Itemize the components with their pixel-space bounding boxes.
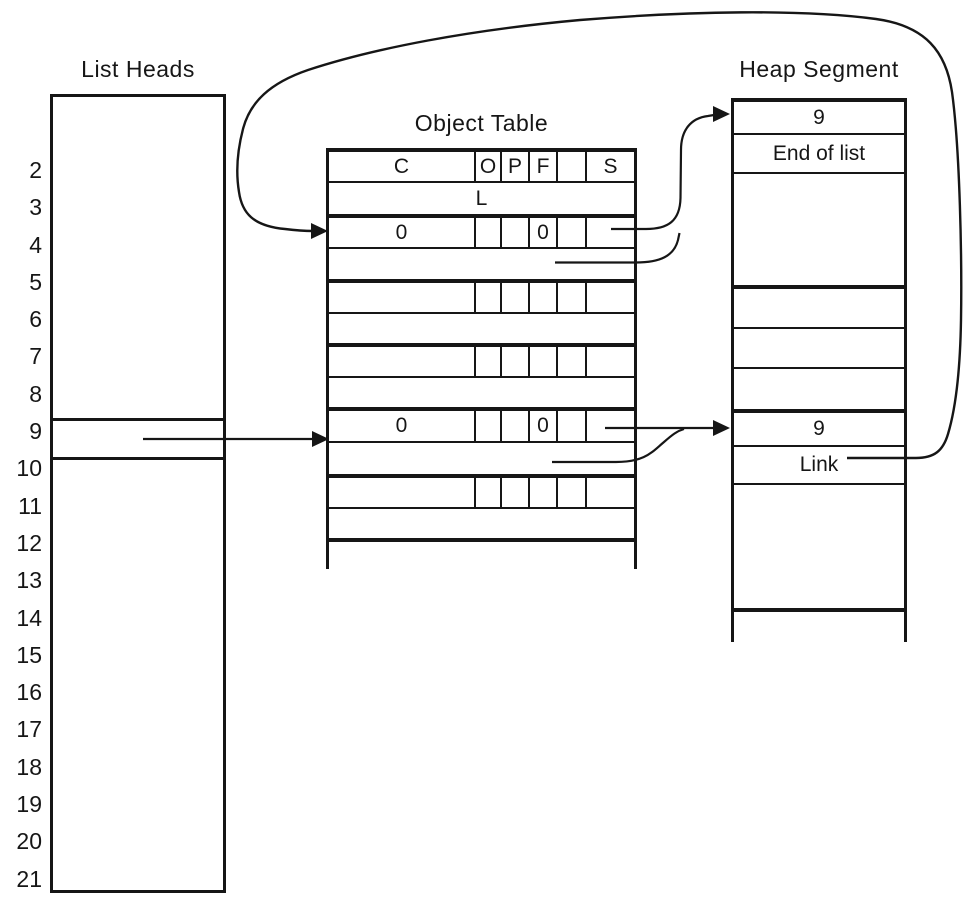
heap-block-body xyxy=(734,485,904,608)
list-index: 6 xyxy=(0,301,42,338)
ot-header-spare-field xyxy=(556,152,585,181)
list-index: 7 xyxy=(0,338,42,375)
ot-cell: 0 xyxy=(329,218,474,247)
heap-block-size-cell: 9 xyxy=(734,102,904,133)
object-table-entry-row2 xyxy=(329,378,634,407)
ot-cell xyxy=(329,347,474,376)
ot-cell xyxy=(500,478,528,507)
ot-cell xyxy=(329,283,474,312)
list-index: 2 xyxy=(0,152,42,189)
list-index: 4 xyxy=(0,227,42,264)
list-index: 16 xyxy=(0,674,42,711)
ot-cell xyxy=(474,478,500,507)
list-index: 19 xyxy=(0,786,42,823)
ot-cell xyxy=(500,283,528,312)
object-table-entry-row2 xyxy=(329,509,634,538)
ot-cell xyxy=(585,218,634,247)
list-index: 21 xyxy=(0,861,42,898)
list-index: 20 xyxy=(0,823,42,860)
object-table-location-row: L xyxy=(329,183,634,214)
heap-segment: 9 End of list 9 Link xyxy=(731,98,907,642)
ot-header-p-field: P xyxy=(500,152,528,181)
list-index: 14 xyxy=(0,600,42,637)
object-table-entry-row2 xyxy=(329,249,634,279)
ot-cell xyxy=(585,347,634,376)
object-table-entry-row: 0 0 xyxy=(329,218,634,247)
ot-cell xyxy=(329,478,474,507)
ot-cell xyxy=(500,218,528,247)
object-table-entry-row2 xyxy=(329,443,634,474)
ot-cell xyxy=(556,218,585,247)
ot-header-o-field: O xyxy=(474,152,500,181)
list-index: 12 xyxy=(0,525,42,562)
heap-block-marker-cell: End of list xyxy=(734,135,904,172)
object-table-entry-row xyxy=(329,283,634,312)
list-index: 13 xyxy=(0,562,42,599)
list-heads-title: List Heads xyxy=(50,56,226,83)
list-index: 8 xyxy=(0,376,42,413)
ot-cell: 0 xyxy=(528,411,556,441)
ot-cell xyxy=(474,347,500,376)
object-table-title: Object Table xyxy=(326,110,637,137)
heap-segment-continuation xyxy=(734,612,904,642)
list-index: 9 xyxy=(0,413,42,450)
ot-cell xyxy=(474,283,500,312)
object-table-entry-row xyxy=(329,478,634,507)
ot-cell xyxy=(556,347,585,376)
object-table-continuation xyxy=(329,542,634,569)
list-index: 18 xyxy=(0,749,42,786)
ot-cell xyxy=(528,283,556,312)
object-table-header-row: C O P F S xyxy=(329,152,634,181)
ot-cell xyxy=(556,478,585,507)
object-table-entry-row2 xyxy=(329,314,634,343)
ot-cell xyxy=(585,283,634,312)
ot-cell: 0 xyxy=(329,411,474,441)
heap-cell xyxy=(734,369,904,409)
ot-header-f-field: F xyxy=(528,152,556,181)
ot-cell: 0 xyxy=(528,218,556,247)
list-head-slot-top-line xyxy=(50,418,226,421)
ot-cell xyxy=(585,478,634,507)
ot-cell xyxy=(556,283,585,312)
object-table-entry-row xyxy=(329,347,634,376)
ot-cell xyxy=(500,347,528,376)
list-index: 10 xyxy=(0,450,42,487)
list-heads-index-column: 2 3 4 5 6 7 8 9 10 11 12 13 14 15 16 17 … xyxy=(0,152,42,898)
ot-cell xyxy=(474,218,500,247)
arrowhead xyxy=(713,420,730,436)
heap-segment-title: Heap Segment xyxy=(731,56,907,83)
arrowhead xyxy=(713,106,730,122)
ot-cell xyxy=(528,478,556,507)
ot-cell xyxy=(474,411,500,441)
list-index: 3 xyxy=(0,189,42,226)
heap-block-body xyxy=(734,174,904,285)
list-index: 11 xyxy=(0,488,42,525)
object-table-entry-row: 0 0 xyxy=(329,411,634,441)
heap-block-marker-cell: Link xyxy=(734,447,904,483)
heap-cell xyxy=(734,329,904,367)
ot-cell xyxy=(556,411,585,441)
ot-header-count-field: C xyxy=(329,152,474,181)
list-heads-box xyxy=(50,94,226,893)
object-table: C O P F S L 0 0 xyxy=(326,148,637,569)
heap-cell xyxy=(734,289,904,327)
free-list-diagram: List Heads 2 3 4 5 6 7 8 9 10 11 12 13 1… xyxy=(0,0,978,915)
ot-cell xyxy=(585,411,634,441)
list-head-slot-bottom-line xyxy=(50,457,226,460)
ot-cell xyxy=(528,347,556,376)
list-index: 17 xyxy=(0,711,42,748)
heap-block-size-cell: 9 xyxy=(734,413,904,445)
ot-cell xyxy=(500,411,528,441)
list-index: 5 xyxy=(0,264,42,301)
list-index: 15 xyxy=(0,637,42,674)
ot-header-segment-field: S xyxy=(585,152,634,181)
